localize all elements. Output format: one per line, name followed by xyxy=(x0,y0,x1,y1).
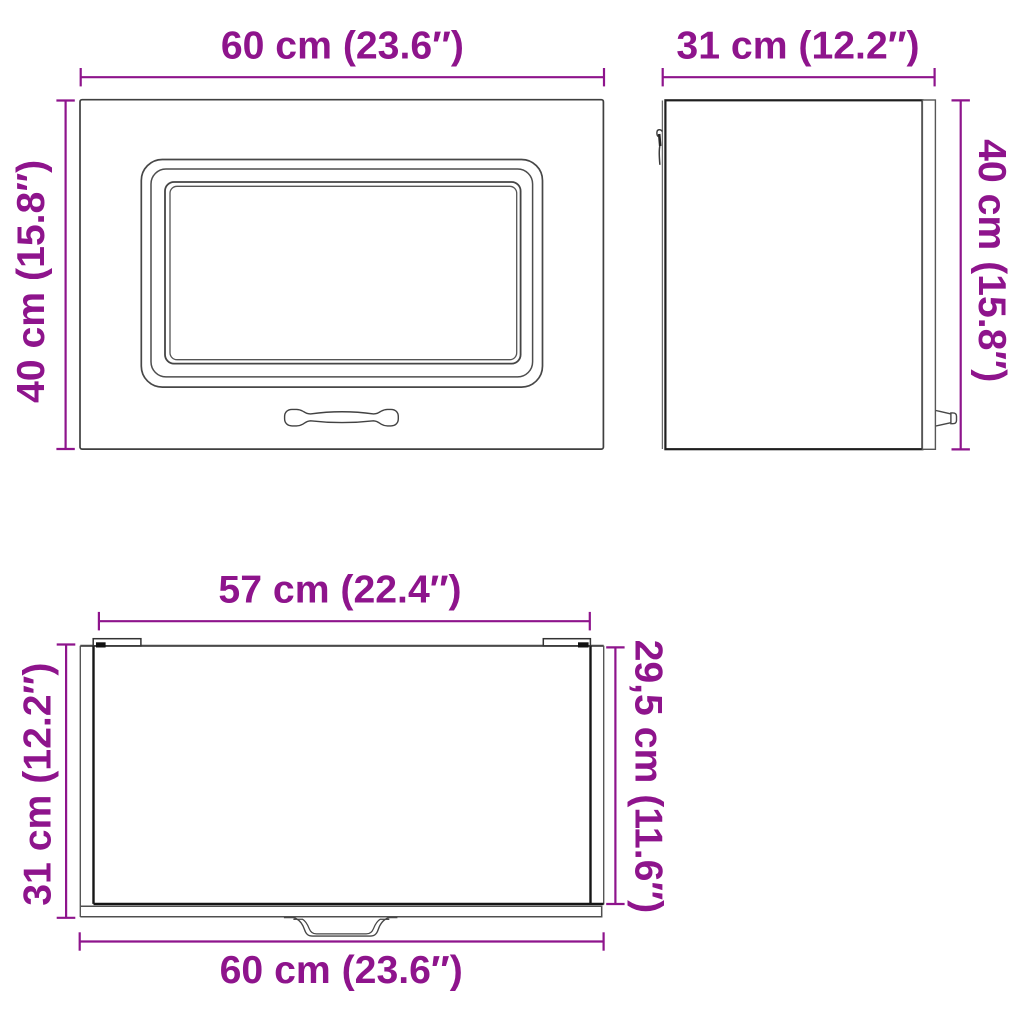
svg-text:60 cm (23.6″): 60 cm (23.6″) xyxy=(220,949,463,992)
svg-text:40 cm (15.8″): 40 cm (15.8″) xyxy=(970,139,1013,382)
svg-text:40 cm (15.8″): 40 cm (15.8″) xyxy=(10,160,53,403)
svg-text:31 cm (12.2″): 31 cm (12.2″) xyxy=(676,25,919,68)
svg-text:31 cm (12.2″): 31 cm (12.2″) xyxy=(17,663,60,906)
svg-text:57 cm (22.4″): 57 cm (22.4″) xyxy=(218,569,461,612)
svg-text:60 cm (23.6″): 60 cm (23.6″) xyxy=(221,25,464,68)
svg-text:29,5 cm (11.6″): 29,5 cm (11.6″) xyxy=(627,640,670,914)
